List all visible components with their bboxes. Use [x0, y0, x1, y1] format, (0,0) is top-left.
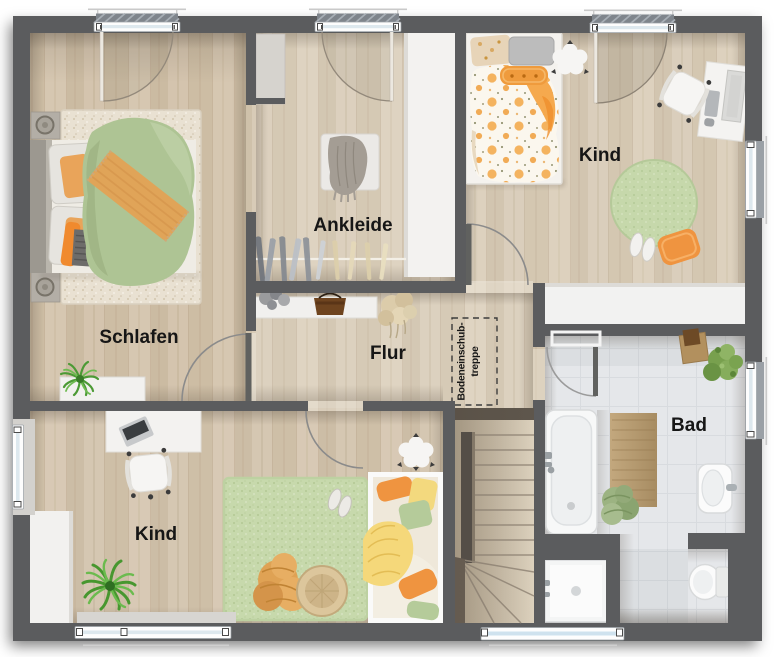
svg-text:Kind: Kind — [135, 524, 177, 545]
svg-text:Bodeneinschub-: Bodeneinschub- — [457, 322, 468, 401]
svg-text:Flur: Flur — [370, 343, 406, 364]
svg-text:treppe: treppe — [470, 346, 481, 377]
svg-text:Schlafen: Schlafen — [99, 327, 178, 348]
svg-text:Kind: Kind — [579, 145, 621, 166]
svg-text:Bad: Bad — [671, 415, 707, 436]
svg-text:Ankleide: Ankleide — [313, 215, 392, 236]
